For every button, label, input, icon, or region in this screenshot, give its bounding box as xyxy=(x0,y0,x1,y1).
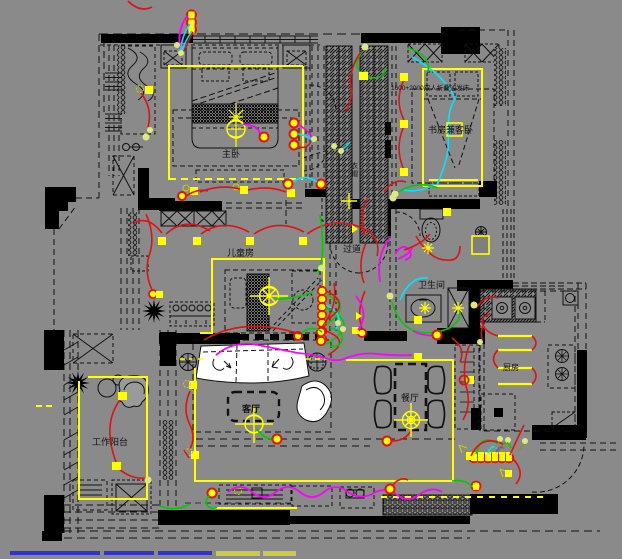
svg-text:过道: 过道 xyxy=(343,243,361,254)
svg-text:书房兼客卧: 书房兼客卧 xyxy=(428,124,473,135)
svg-text:餐厅: 餐厅 xyxy=(401,392,419,403)
svg-text:工作阳台: 工作阳台 xyxy=(92,436,128,447)
svg-text:客厅: 客厅 xyxy=(241,403,260,414)
svg-text:主卧: 主卧 xyxy=(222,148,240,159)
svg-text:帽: 帽 xyxy=(351,169,358,178)
svg-text:衣: 衣 xyxy=(351,161,358,170)
svg-text:卫生间: 卫生间 xyxy=(418,279,445,290)
svg-text:厨房: 厨房 xyxy=(503,362,519,372)
svg-text:1600+2000双人折叠沙发床: 1600+2000双人折叠沙发床 xyxy=(391,83,470,92)
svg-text:儿童房: 儿童房 xyxy=(227,247,254,258)
